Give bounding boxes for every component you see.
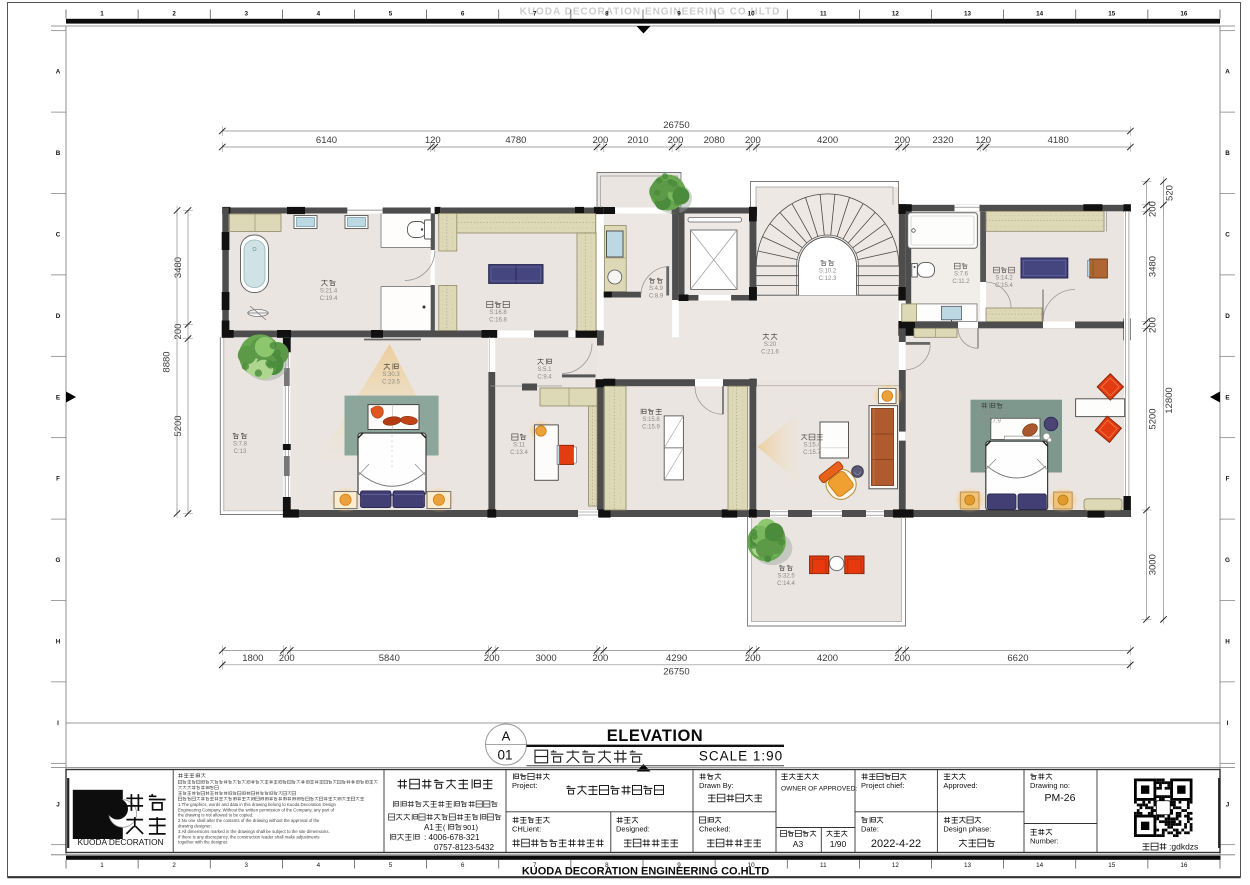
svg-text:901): 901) — [463, 823, 479, 832]
svg-text:8: 8 — [605, 11, 609, 18]
svg-text:1/90: 1/90 — [830, 839, 847, 849]
svg-text:7: 7 — [533, 11, 537, 18]
svg-text:2: 2 — [172, 862, 176, 869]
svg-text:OWNER OF APPROVED:: OWNER OF APPROVED: — [781, 786, 857, 793]
svg-text:200: 200 — [894, 653, 910, 664]
svg-text:C:21.6: C:21.6 — [761, 350, 779, 356]
svg-text:8880: 8880 — [162, 351, 173, 372]
svg-text::gdkdzs: :gdkdzs — [1169, 842, 1198, 852]
svg-text:16: 16 — [1180, 11, 1188, 18]
svg-text:2080: 2080 — [704, 135, 725, 146]
svg-text:C:16.8: C:16.8 — [489, 318, 507, 324]
svg-text:E: E — [1225, 394, 1229, 401]
svg-text:ELEVATION: ELEVATION — [607, 727, 703, 745]
svg-text:B: B — [1225, 150, 1230, 157]
svg-text:200: 200 — [592, 135, 608, 146]
svg-text:200: 200 — [745, 653, 761, 664]
svg-text:If there is any discrepancy, t: If there is any discrepancy, the constru… — [178, 834, 320, 839]
svg-text:S:7.6: S:7.6 — [954, 272, 969, 278]
svg-text:4: 4 — [317, 11, 321, 18]
svg-text:1: 1 — [100, 11, 104, 18]
svg-text:S:7.8: S:7.8 — [233, 442, 248, 448]
svg-text:14: 14 — [1036, 862, 1044, 869]
svg-text:9: 9 — [677, 11, 681, 18]
svg-text:C:9.4: C:9.4 — [537, 375, 552, 381]
svg-text:KUODA DECORATION ENGINEERING C: KUODA DECORATION ENGINEERING CO.HLTD — [520, 7, 781, 18]
svg-text:Drawing no:: Drawing no: — [1030, 781, 1070, 790]
svg-text:4290: 4290 — [666, 653, 687, 664]
svg-text:C:15.9: C:15.9 — [642, 425, 660, 431]
svg-text:120: 120 — [425, 135, 441, 146]
svg-text:KUODA DECORATION: KUODA DECORATION — [77, 837, 163, 847]
svg-text:S:15.8: S:15.8 — [642, 417, 660, 423]
svg-text:1800: 1800 — [242, 653, 263, 664]
svg-text:A: A — [56, 69, 61, 76]
svg-text:S:4.9: S:4.9 — [649, 286, 664, 292]
svg-text:D: D — [1225, 313, 1230, 320]
svg-text:G: G — [56, 557, 61, 564]
svg-text:S:10.2: S:10.2 — [819, 269, 837, 275]
svg-text:12: 12 — [892, 862, 900, 869]
svg-text:11: 11 — [820, 862, 827, 869]
svg-text:12: 12 — [892, 11, 900, 18]
svg-text:SCALE 1:90: SCALE 1:90 — [699, 749, 783, 764]
svg-text:J: J — [1226, 801, 1230, 808]
svg-text:A: A — [1225, 69, 1230, 76]
svg-text:Approved:: Approved: — [943, 781, 977, 790]
svg-text:Number:: Number: — [1030, 837, 1059, 846]
svg-text:S:15.4: S:15.4 — [803, 443, 821, 449]
svg-text:4: 4 — [317, 862, 321, 869]
svg-text:A: A — [502, 729, 511, 744]
svg-text:200: 200 — [484, 653, 500, 664]
svg-text:2320: 2320 — [932, 135, 953, 146]
svg-text:4780: 4780 — [505, 135, 526, 146]
svg-text:6140: 6140 — [316, 135, 337, 146]
svg-text:200: 200 — [1148, 201, 1159, 217]
svg-text:C:19.4: C:19.4 — [320, 296, 338, 302]
svg-text:the drawing is not allowed to: the drawing is not allowed to be copied. — [178, 813, 253, 818]
svg-text:5: 5 — [389, 11, 393, 18]
svg-text:3: 3 — [245, 862, 249, 869]
svg-text:drawing designer;: drawing designer; — [178, 824, 212, 829]
svg-text:2010: 2010 — [627, 135, 648, 146]
svg-text:120: 120 — [975, 135, 991, 146]
svg-text:15: 15 — [1108, 862, 1116, 869]
svg-text:C:27.9: C:27.9 — [983, 419, 1001, 425]
svg-text:Design phase:: Design phase: — [943, 825, 991, 834]
svg-text:C:14.4: C:14.4 — [777, 581, 795, 587]
svg-text:6620: 6620 — [1007, 653, 1028, 664]
svg-text:10: 10 — [748, 11, 756, 18]
svg-text:S:14.2: S:14.2 — [995, 276, 1013, 282]
svg-text:2022-4-22: 2022-4-22 — [871, 838, 921, 850]
svg-text:200: 200 — [592, 653, 608, 664]
svg-text:S:33.7: S:33.7 — [983, 411, 1001, 417]
svg-text:I: I — [57, 720, 59, 727]
svg-text:200: 200 — [894, 135, 910, 146]
svg-text:S:16.8: S:16.8 — [489, 310, 507, 316]
svg-text:together with the designer.: together with the designer. — [178, 840, 228, 845]
svg-text:5200: 5200 — [1148, 408, 1159, 429]
svg-text:D: D — [56, 313, 61, 320]
svg-text:F: F — [56, 476, 60, 483]
svg-text:Date:: Date: — [861, 825, 879, 834]
svg-text:A3: A3 — [793, 839, 804, 849]
svg-text:200: 200 — [1148, 317, 1159, 333]
svg-text:15: 15 — [1108, 11, 1116, 18]
svg-text:3000: 3000 — [536, 653, 557, 664]
svg-text:G: G — [1225, 557, 1230, 564]
svg-text:6: 6 — [461, 862, 465, 869]
svg-text:E: E — [56, 394, 60, 401]
svg-text:4200: 4200 — [817, 653, 838, 664]
svg-text:2: 2 — [172, 11, 176, 18]
svg-text:I: I — [1227, 720, 1229, 727]
svg-text:B: B — [56, 150, 61, 157]
svg-text:J: J — [56, 801, 60, 808]
svg-text:4200: 4200 — [817, 135, 838, 146]
svg-text:520: 520 — [1165, 185, 1176, 201]
svg-text:5200: 5200 — [173, 415, 184, 436]
svg-text:200: 200 — [173, 324, 184, 340]
svg-text:H: H — [56, 639, 61, 646]
svg-text:3480: 3480 — [1148, 256, 1159, 277]
svg-text:A1: A1 — [424, 823, 434, 832]
svg-text:Designed:: Designed: — [616, 825, 650, 834]
svg-text:C:15.7: C:15.7 — [803, 450, 821, 456]
svg-text:12800: 12800 — [1164, 387, 1175, 413]
svg-text:6: 6 — [461, 11, 465, 18]
svg-text:: 4006-678-321: : 4006-678-321 — [424, 833, 480, 842]
svg-text:01: 01 — [497, 748, 512, 763]
svg-text:2.No one shall alter the conte: 2.No one shall alter the contents of the… — [178, 818, 320, 823]
svg-text:26750: 26750 — [663, 667, 689, 678]
svg-text:C:23.5: C:23.5 — [382, 380, 400, 386]
svg-text:KUODA DECORATION ENGINEERING: KUODA DECORATION ENGINEERING CO.HLTD — [522, 866, 769, 878]
svg-text:C: C — [56, 232, 61, 239]
svg-text:13: 13 — [964, 11, 972, 18]
svg-text:C: C — [1225, 232, 1230, 239]
svg-text:Engineering Company. Without t: Engineering Company. Without the written… — [178, 807, 335, 812]
svg-text:Drawn By:: Drawn By: — [699, 781, 734, 790]
svg-text:S:21.4: S:21.4 — [320, 289, 338, 295]
svg-text:C:8.9: C:8.9 — [649, 294, 664, 300]
svg-text:26750: 26750 — [663, 120, 689, 131]
svg-text:S:32.5: S:32.5 — [777, 574, 795, 580]
svg-text:C:13.4: C:13.4 — [510, 450, 528, 456]
svg-text:H: H — [1225, 639, 1230, 646]
svg-text:3: 3 — [245, 11, 249, 18]
svg-text:CHLient:: CHLient: — [512, 825, 541, 834]
svg-text:14: 14 — [1036, 11, 1044, 18]
svg-text:S:20: S:20 — [764, 342, 777, 348]
svg-text:F: F — [1226, 476, 1230, 483]
svg-text:1: 1 — [100, 862, 104, 869]
svg-text:PM-26: PM-26 — [1045, 792, 1076, 804]
svg-text:5840: 5840 — [379, 653, 400, 664]
svg-text:11: 11 — [820, 11, 827, 18]
svg-text:1.The graphics, words and data: 1.The graphics, words and data in this d… — [178, 802, 336, 807]
svg-text:0757-8123-5432: 0757-8123-5432 — [434, 843, 495, 852]
svg-text:C:15.4: C:15.4 — [995, 283, 1013, 289]
svg-text:16: 16 — [1180, 862, 1188, 869]
svg-text:4180: 4180 — [1048, 135, 1069, 146]
svg-text:C:12.3: C:12.3 — [819, 276, 837, 282]
svg-text:S:30.3: S:30.3 — [382, 372, 400, 378]
svg-text:S:11: S:11 — [513, 443, 526, 449]
svg-text:3480: 3480 — [173, 257, 184, 278]
svg-text:C:11.2: C:11.2 — [952, 279, 970, 285]
svg-text:3000: 3000 — [1148, 554, 1159, 575]
svg-text:C:13: C:13 — [234, 449, 247, 455]
svg-text:Checked:: Checked: — [699, 825, 731, 834]
svg-text:Project chief:: Project chief: — [861, 781, 904, 790]
svg-text:200: 200 — [668, 135, 684, 146]
svg-text:200: 200 — [279, 653, 295, 664]
svg-text:5: 5 — [389, 862, 393, 869]
svg-text:200: 200 — [745, 135, 761, 146]
svg-text:Project:: Project: — [512, 781, 537, 790]
svg-text:13: 13 — [964, 862, 972, 869]
svg-text:3.All dimensions marked in the: 3.All dimensions marked in the drawings … — [178, 829, 330, 834]
svg-text:S:5.1: S:5.1 — [537, 367, 552, 373]
